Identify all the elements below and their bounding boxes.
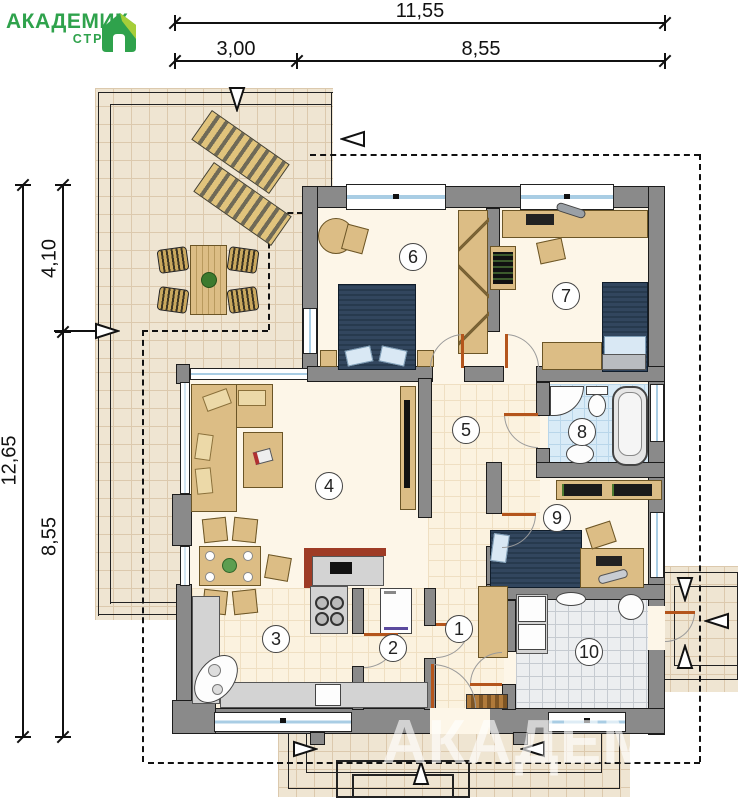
slope-arrow-icon (94, 322, 120, 340)
door-leaf-room7 (505, 334, 508, 368)
wall-room9-left-a (486, 462, 502, 514)
window-living-top (190, 368, 308, 380)
wall-hall-top-a (464, 366, 504, 382)
wardrobe-door (459, 211, 489, 258)
wall-exterior-right (648, 186, 665, 735)
window-living-left-b (180, 546, 190, 586)
kitchen-island-edge (304, 548, 312, 588)
burner (315, 612, 329, 626)
utility-sink-b (518, 624, 546, 650)
terrace-outline-inner (110, 602, 182, 603)
floor-plan: АКАДЕМИК СТРОЙ (0, 0, 738, 800)
dining-chair (232, 517, 258, 543)
wall-kitchen-hall-a (352, 588, 364, 634)
terrace-chair (226, 246, 259, 274)
roof-dashed-right (699, 154, 701, 762)
wardrobe-entry (478, 586, 508, 658)
terrace-chair (156, 246, 189, 274)
fridge-trim (384, 627, 408, 630)
burner (330, 596, 344, 610)
bed-bench (602, 354, 646, 370)
burner (315, 596, 329, 610)
roof-dashed-left (142, 330, 144, 762)
plate (205, 572, 215, 582)
stove-counter (310, 586, 348, 634)
wall-pier-living-corner (176, 364, 190, 384)
utility-sink-a (518, 596, 546, 622)
dim-label-top-total: 11,55 (175, 0, 665, 23)
wall-bath-bottom (536, 462, 665, 478)
window-mark (280, 718, 286, 723)
room-label-9: 9 (543, 504, 571, 532)
room-label-2: 2 (379, 634, 407, 662)
dim-line-side-split (62, 185, 64, 737)
door-leaf-utility (470, 683, 502, 686)
wall-corner-bottom-left (172, 700, 216, 734)
sink-basin (208, 664, 221, 677)
wall-stub-1 (310, 732, 325, 745)
roof-dashed-terrace-h (142, 330, 268, 332)
room-label-5: 5 (452, 416, 480, 444)
wardrobe-door (459, 258, 489, 305)
dim-label-side-upper: 4,10 (39, 209, 62, 309)
kitchen-island-edge (304, 548, 386, 556)
sink-basin (212, 684, 223, 695)
wall-bath-left-a (536, 382, 550, 416)
dishwasher (315, 684, 341, 706)
laptop-room7 (526, 214, 554, 225)
wall-tv (418, 378, 432, 518)
room-label-10: 10 (575, 638, 603, 666)
dim-label-top-left: 3,00 (175, 38, 297, 61)
plate (243, 551, 253, 561)
logo-house-icon (96, 8, 140, 56)
door-leaf-room9 (502, 513, 536, 516)
dim-label-top-right: 8,55 (297, 38, 665, 61)
shelf-items (562, 484, 602, 496)
slope-arrow-icon (676, 644, 694, 670)
books (493, 252, 513, 284)
door-leaf-porch (665, 611, 695, 614)
terrace-outline-inner (110, 104, 331, 105)
wall-pier-living-mid (172, 494, 192, 546)
terrace-chair (226, 286, 259, 314)
fridge-handle (384, 591, 396, 594)
window-bathroom (650, 384, 664, 442)
pillow (604, 336, 646, 356)
slope-arrow-icon (676, 576, 694, 602)
burner (330, 612, 344, 626)
tv (404, 400, 410, 488)
bathtub-inner (618, 392, 642, 456)
room-label-8: 8 (568, 418, 596, 446)
utility-basin-round (618, 594, 644, 620)
terrace-outline (331, 92, 332, 190)
sofa-cushion (195, 467, 214, 495)
slope-arrow-icon (340, 130, 366, 148)
slope-arrow-icon (228, 86, 246, 112)
door-leaf-bathroom (504, 413, 538, 416)
window-room9 (650, 512, 664, 578)
plate (205, 551, 215, 561)
terrace-outline (98, 92, 99, 616)
slope-arrow-icon (704, 612, 730, 630)
door-opening-right (648, 606, 665, 650)
dining-chair (202, 517, 228, 543)
door-leaf-front (431, 664, 434, 708)
dim-label-side-lower: 8,55 (39, 487, 62, 587)
terrace-chair (156, 286, 189, 314)
toilet-bowl (588, 394, 606, 417)
terrace-plant (201, 272, 217, 288)
plate (243, 572, 253, 582)
room-label-3: 3 (262, 625, 290, 653)
utility-basin-oval (556, 592, 586, 606)
dining-chair (232, 589, 258, 615)
shelf-items (612, 484, 652, 496)
roof-dashed-top (310, 154, 700, 156)
watermark: АКАДЕМИК (382, 706, 632, 780)
room-label-6: 6 (399, 243, 427, 271)
wardrobe-room6 (458, 210, 488, 354)
terrace-floor-left (95, 372, 182, 620)
wall-exterior-left-kitchen (176, 584, 192, 714)
dim-line-side-total (22, 185, 24, 737)
table-plant (222, 558, 237, 573)
room-label-7: 7 (552, 282, 580, 310)
sofa-cushion (238, 390, 266, 406)
terrace-outline-inner (110, 104, 111, 604)
window-bedroom6-side (303, 308, 317, 354)
nightstand (320, 350, 337, 367)
terrace-outline (98, 614, 182, 615)
window-mark (564, 194, 570, 199)
dining-chair (264, 554, 292, 582)
dim-label-side-total: 12,65 (0, 411, 22, 511)
room-label-4: 4 (315, 472, 343, 500)
laptop-room9 (596, 556, 622, 566)
window-living-left-a (180, 382, 190, 494)
terrace-outline (98, 92, 333, 93)
room-label-1: 1 (445, 615, 473, 643)
door-leaf-room6 (461, 334, 464, 368)
kitchen-sink-dark (330, 562, 352, 574)
window-mark (393, 194, 399, 199)
desk-room9 (580, 548, 644, 588)
dresser-room7 (542, 342, 602, 370)
wall-hall12-a (424, 588, 436, 626)
bidet (566, 444, 594, 464)
